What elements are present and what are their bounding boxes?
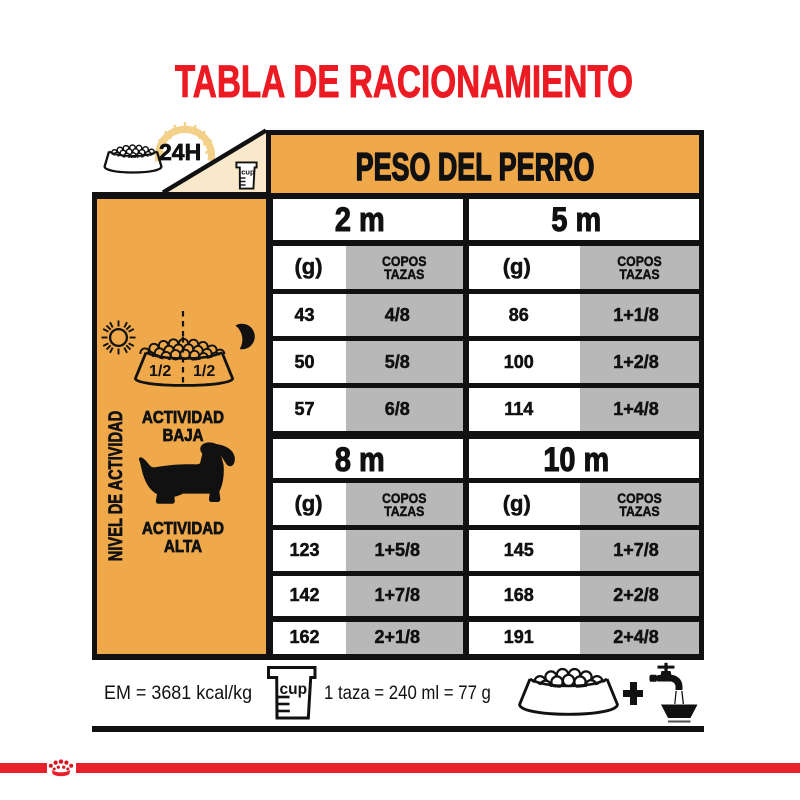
svg-text:cup: cup [241, 168, 255, 177]
svg-text:cup: cup [280, 681, 308, 698]
svg-text:1/2: 1/2 [149, 363, 171, 380]
svg-text:1/2: 1/2 [193, 363, 215, 380]
